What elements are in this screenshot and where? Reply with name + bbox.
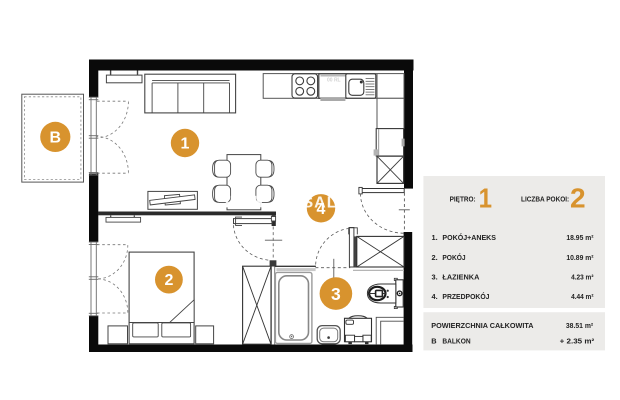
svg-text:LICZBA POKOI:: LICZBA POKOI: (521, 194, 569, 203)
svg-text:PIĘTRO:: PIĘTRO: (450, 194, 476, 203)
svg-text:POKÓJ: POKÓJ (442, 253, 465, 262)
svg-text:1.: 1. (432, 233, 438, 242)
svg-text:2: 2 (164, 272, 173, 289)
svg-text:BALKON: BALKON (442, 337, 470, 346)
svg-text:SALD: SALD (303, 194, 351, 211)
svg-text:2.: 2. (432, 253, 438, 262)
svg-text:3: 3 (331, 284, 341, 304)
svg-text:18.95 m²: 18.95 m² (566, 233, 594, 242)
svg-text:POWIERZCHNIA CAŁKOWITA: POWIERZCHNIA CAŁKOWITA (431, 321, 534, 330)
svg-text:1: 1 (181, 136, 190, 153)
svg-text:4.23 m²: 4.23 m² (571, 273, 594, 282)
svg-text:00 RL: 00 RL (327, 78, 341, 84)
svg-text:PRZEDPOKÓJ: PRZEDPOKÓJ (442, 292, 489, 301)
svg-text:1: 1 (479, 183, 492, 214)
svg-text:10.89 m²: 10.89 m² (566, 253, 594, 262)
svg-text:4.44 m²: 4.44 m² (571, 292, 594, 301)
svg-text:B: B (50, 130, 62, 147)
svg-text:2: 2 (570, 183, 586, 214)
svg-text:POKÓJ+ANEKS: POKÓJ+ANEKS (442, 233, 496, 242)
svg-text:4.: 4. (432, 292, 438, 301)
svg-text:+ 2.35 m²: + 2.35 m² (560, 337, 595, 346)
svg-text:38.51 m²: 38.51 m² (566, 321, 594, 330)
svg-text:ŁAZIENKA: ŁAZIENKA (442, 273, 480, 282)
svg-text:3.: 3. (432, 273, 438, 282)
svg-text:B: B (431, 337, 436, 346)
